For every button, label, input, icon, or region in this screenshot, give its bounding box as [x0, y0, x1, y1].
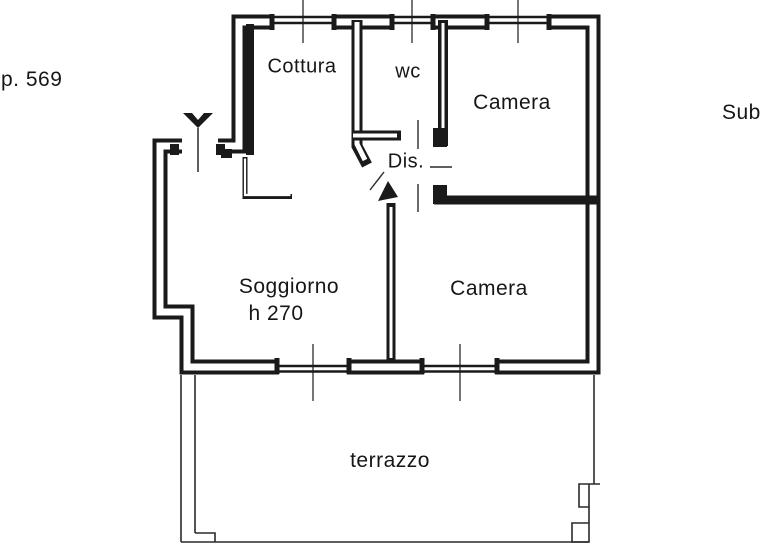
- room-label-camera-sud: Camera: [450, 277, 528, 301]
- room-label-disimpegno: Dis.: [388, 151, 424, 174]
- floor-plan-drawing: [0, 0, 768, 560]
- room-height-note: h 270: [248, 302, 303, 326]
- room-label-camera-nord: Camera: [473, 91, 551, 115]
- room-label-soggiorno: Soggiorno: [239, 275, 339, 299]
- room-label-wc: wc: [395, 61, 420, 84]
- window-icon: [422, 344, 497, 401]
- exterior-walls: [160, 22, 593, 367]
- room-label-terrazzo: terrazzo: [350, 449, 430, 473]
- window-icon: [277, 344, 349, 401]
- page-ref-label: p. 569: [1, 68, 62, 92]
- counter-line: [245, 157, 292, 197]
- floor-plan: p. 569 Sub Cottura wc Camera Dis. Soggio…: [0, 0, 768, 560]
- entry-direction-arrow-icon: [378, 181, 398, 201]
- room-label-cottura: Cottura: [267, 56, 336, 79]
- sub-ref-label: Sub: [722, 101, 761, 125]
